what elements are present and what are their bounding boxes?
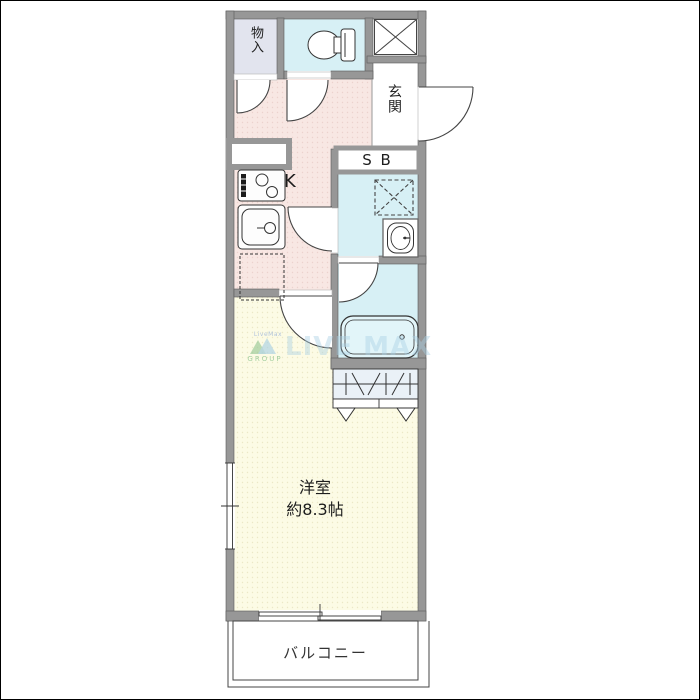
room-name: 洋室	[234, 477, 396, 499]
vanity-sink-icon	[383, 219, 418, 257]
living-room-label: 洋室 約8.3帖	[234, 477, 396, 521]
watermark-main-text: LIVE MAX	[285, 334, 432, 360]
watermark-small-text: LiveMax	[254, 331, 282, 338]
storage-label: 物入	[246, 26, 265, 54]
door-arc-entrance	[419, 87, 473, 141]
toilet-icon	[308, 29, 355, 61]
watermark-group-text: GROUP	[247, 355, 282, 363]
kitchen-window-box	[229, 141, 289, 167]
room-size: 約8.3帖	[234, 499, 396, 521]
kitchen-sink-icon	[238, 205, 285, 249]
shaft-x-icon	[375, 20, 417, 55]
watermark-mountains-icon	[246, 338, 280, 355]
floor-plan-canvas: 物入 玄関 S B K 洋室 約8.3帖 バルコニー LiveMax GROUP…	[0, 0, 700, 700]
watermark-logo: LiveMax GROUP	[241, 331, 285, 363]
watermark: LiveMax GROUP LIVE MAX	[241, 331, 432, 363]
stove-icon	[238, 170, 285, 201]
kitchen-label: K	[284, 171, 296, 192]
entrance-label: 玄関	[384, 84, 404, 114]
balcony-label: バルコニー	[233, 642, 418, 663]
closet-door-track	[333, 399, 418, 408]
shoe-box-label: S B	[336, 149, 419, 171]
